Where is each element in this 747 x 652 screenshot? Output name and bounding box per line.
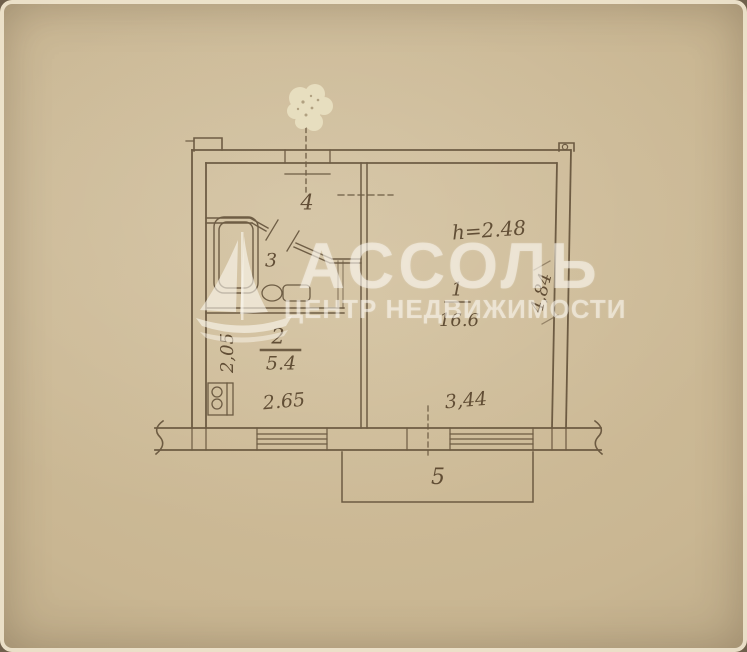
room-5-number: 5 bbox=[431, 467, 445, 489]
watermark-brand-text: АССОЛЬ bbox=[298, 233, 601, 298]
pilaster-top-left bbox=[186, 138, 222, 151]
living-window-symbol bbox=[450, 428, 533, 450]
room-4-number: 4 bbox=[300, 193, 313, 214]
sailboat-logo-icon bbox=[186, 222, 306, 347]
room-2-area: 5.4 bbox=[266, 355, 296, 374]
watermark-tagline-text: ЦЕНТР НЕДВИЖИМОСТИ bbox=[284, 296, 626, 322]
scanned-floor-plan-photo: 4 3 2 5.4 2.65 2,05 1 16.6 h=2.48 4,84 3… bbox=[0, 0, 747, 652]
kitchen-window-symbol bbox=[257, 428, 327, 450]
floor-plan-drawing bbox=[0, 0, 747, 652]
stove-icon bbox=[208, 383, 233, 415]
dimension-kitchen-width: 2.65 bbox=[262, 391, 306, 414]
seal-stamp-blob bbox=[278, 78, 348, 144]
dimension-living-width: 3,44 bbox=[444, 390, 488, 413]
balcony-door-symbol bbox=[407, 406, 428, 455]
wall-break-marks bbox=[156, 421, 602, 454]
